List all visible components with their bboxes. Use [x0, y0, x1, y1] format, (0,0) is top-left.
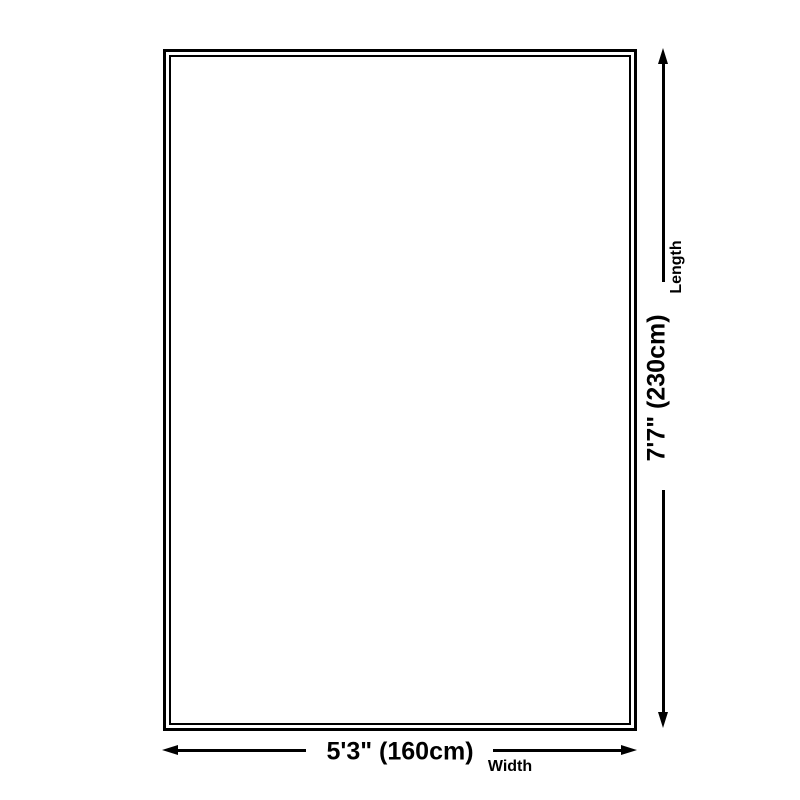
width-value: 5'3" (160cm) [326, 740, 473, 765]
width-dimension-line-right [493, 749, 622, 752]
arrow-right-icon [621, 745, 637, 755]
length-label: Length [669, 240, 685, 293]
length-dimension-line-top [662, 62, 665, 282]
rug-outline-inner-border [169, 55, 631, 725]
length-dimension-line-bottom [662, 490, 665, 714]
arrow-down-icon [658, 712, 668, 728]
rug-dimensions-diagram: Length 7'7" (230cm) 5'3" (160cm) Width [0, 0, 800, 800]
length-value: 7'7" (230cm) [645, 314, 670, 461]
rug-outline [163, 49, 637, 731]
width-label: Width [488, 759, 532, 775]
width-dimension-line-left [177, 749, 306, 752]
arrow-left-icon [162, 745, 178, 755]
